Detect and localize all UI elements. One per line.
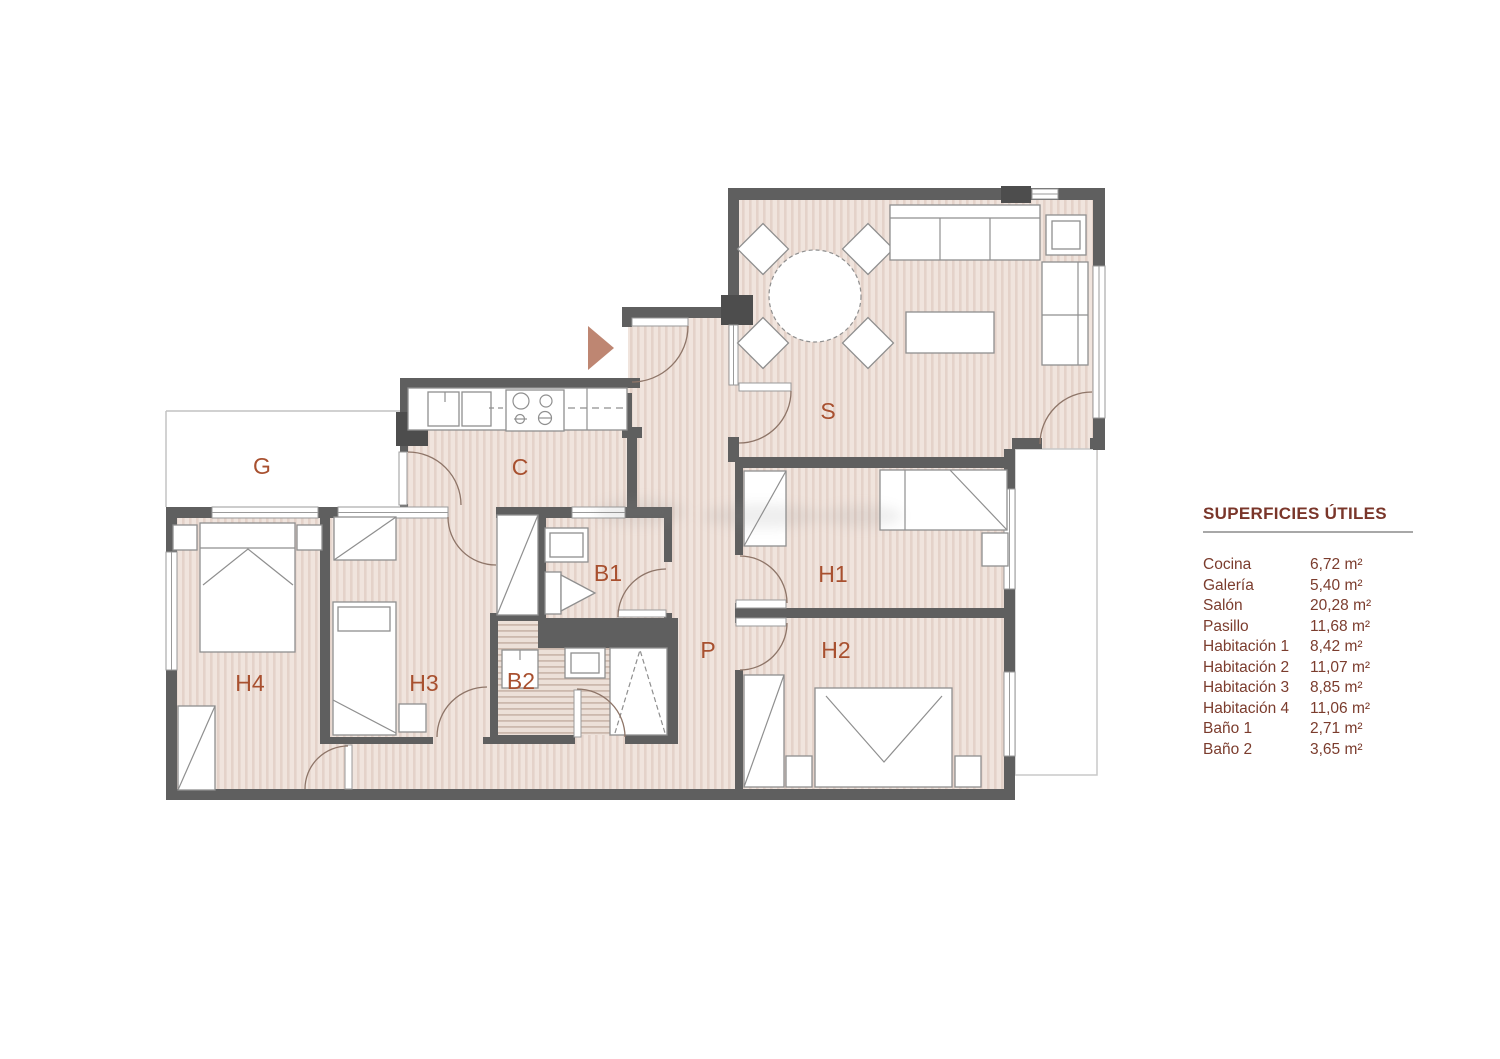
- terrace-area: [1015, 449, 1097, 775]
- galeria-window-1: [212, 507, 318, 518]
- legend-row: Cocina 6,72 m²: [1203, 555, 1413, 576]
- legend-rows: Cocina 6,72 m² Galería 5,40 m² Salón 20,…: [1203, 555, 1413, 760]
- legend-room-name: Habitación 4: [1203, 699, 1310, 720]
- legend-room-name: Baño 2: [1203, 740, 1310, 761]
- room-label-habitacion4: H4: [235, 670, 265, 696]
- legend-room-name: Baño 1: [1203, 719, 1310, 740]
- legend-room-name: Salón: [1203, 596, 1310, 617]
- room-label-habitacion2: H2: [821, 637, 850, 663]
- legend-room-area: 2,71 m²: [1310, 719, 1363, 740]
- legend-room-area: 8,42 m²: [1310, 637, 1363, 658]
- legend-room-name: Habitación 3: [1203, 678, 1310, 699]
- room-label-cocina: C: [512, 454, 529, 480]
- legend-room-area: 11,07 m²: [1310, 658, 1370, 679]
- wardrobe-h2: [744, 675, 784, 787]
- room-label-pasillo: P: [700, 637, 715, 663]
- legend-row: Galería 5,40 m²: [1203, 576, 1413, 597]
- legend-row: Habitación 3 8,85 m²: [1203, 678, 1413, 699]
- nightstand: [399, 704, 426, 732]
- closet-h3: [334, 517, 396, 560]
- bed-h2: [786, 688, 981, 787]
- kitchen-sink: [428, 392, 459, 426]
- nightstand: [173, 525, 197, 550]
- legend: SUPERFICIES ÚTILES Cocina 6,72 m² Galerí…: [1203, 504, 1413, 760]
- b1-sink: [545, 528, 588, 562]
- legend-room-area: 20,28 m²: [1310, 596, 1371, 617]
- salon-right-window: [1093, 266, 1105, 418]
- legend-row: Habitación 2 11,07 m²: [1203, 658, 1413, 679]
- legend-row: Habitación 1 8,42 m²: [1203, 637, 1413, 658]
- galeria-window-2: [338, 507, 448, 518]
- legend-room-area: 5,40 m²: [1310, 576, 1363, 597]
- legend-room-name: Pasillo: [1203, 617, 1310, 638]
- floor-plan-page: G C S B1 B2 P H1 H2 H3 H4 SUPERFICIES ÚT…: [0, 0, 1500, 1059]
- entrance-arrow-icon: [588, 326, 614, 370]
- salon-top-window: [1032, 189, 1058, 199]
- legend-row: Habitación 4 11,06 m²: [1203, 699, 1413, 720]
- dining-table: [769, 250, 861, 342]
- room-label-salon: S: [820, 398, 835, 424]
- kitchen-counter: [408, 388, 627, 431]
- legend-title: SUPERFICIES ÚTILES: [1203, 504, 1413, 533]
- nightstand: [786, 756, 812, 787]
- legend-room-name: Habitación 2: [1203, 658, 1310, 679]
- hall-floor: [628, 312, 737, 514]
- room-label-habitacion3: H3: [409, 670, 438, 696]
- legend-room-area: 11,68 m²: [1310, 617, 1370, 638]
- legend-room-area: 3,65 m²: [1310, 740, 1363, 761]
- wardrobe-h3: [497, 515, 538, 615]
- wardrobe-h4: [178, 706, 215, 790]
- coffee-table: [906, 312, 994, 353]
- legend-room-area: 8,85 m²: [1310, 678, 1363, 699]
- salon-left-window: [729, 325, 738, 385]
- room-label-bano1: B1: [594, 560, 622, 586]
- side-table: [1046, 215, 1086, 255]
- nightstand: [297, 525, 322, 550]
- legend-row: Baño 2 3,65 m²: [1203, 740, 1413, 761]
- legend-room-area: 11,06 m²: [1310, 699, 1370, 720]
- b2-sink: [565, 648, 605, 678]
- galeria-area: [166, 411, 400, 507]
- legend-row: Salón 20,28 m²: [1203, 596, 1413, 617]
- room-label-bano2: B2: [507, 668, 535, 694]
- kitchen-stove: [506, 390, 564, 431]
- legend-room-area: 6,72 m²: [1310, 555, 1363, 576]
- h2-window: [1004, 672, 1015, 756]
- legend-room-name: Cocina: [1203, 555, 1310, 576]
- room-label-galeria: G: [253, 453, 271, 479]
- legend-room-name: Habitación 1: [1203, 637, 1310, 658]
- hall-closet: [610, 648, 667, 735]
- legend-room-name: Galería: [1203, 576, 1310, 597]
- nightstand: [955, 756, 981, 787]
- legend-row: Baño 1 2,71 m²: [1203, 719, 1413, 740]
- room-label-habitacion1: H1: [818, 561, 847, 587]
- legend-row: Pasillo 11,68 m²: [1203, 617, 1413, 638]
- nightstand: [982, 533, 1008, 566]
- h4-window: [166, 552, 177, 670]
